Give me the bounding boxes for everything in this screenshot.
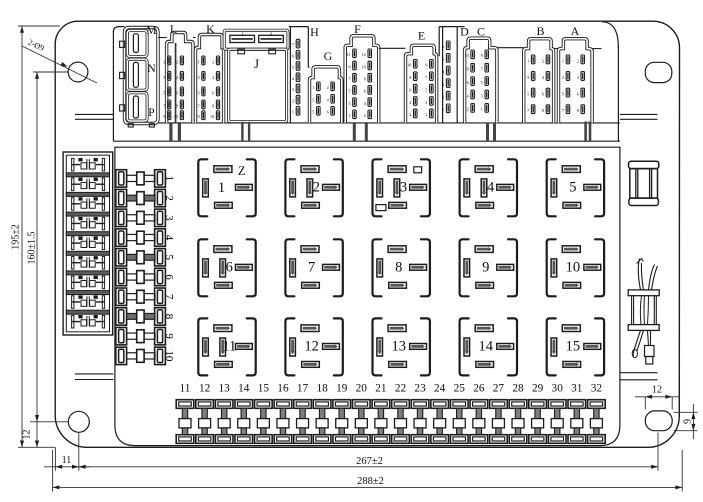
svg-text:267±2: 267±2 <box>356 456 383 467</box>
svg-text:3: 3 <box>163 215 175 221</box>
svg-text:15: 15 <box>566 338 581 354</box>
svg-text:10: 10 <box>407 63 411 68</box>
svg-text:3: 3 <box>312 98 314 103</box>
svg-text:7: 7 <box>198 103 200 108</box>
svg-text:8: 8 <box>409 75 411 80</box>
svg-text:3: 3 <box>442 82 444 87</box>
svg-text:7: 7 <box>308 259 315 275</box>
svg-text:32: 32 <box>591 383 603 395</box>
svg-text:7: 7 <box>481 67 483 72</box>
svg-text:2: 2 <box>364 113 366 118</box>
svg-text:6: 6 <box>442 44 444 49</box>
svg-text:3: 3 <box>481 93 483 98</box>
svg-text:N: N <box>147 63 156 75</box>
svg-text:22: 22 <box>395 383 407 395</box>
svg-text:2: 2 <box>176 59 178 64</box>
svg-text:7: 7 <box>425 75 427 80</box>
svg-text:12: 12 <box>22 430 33 440</box>
svg-text:11: 11 <box>62 455 72 466</box>
svg-text:7: 7 <box>292 42 294 47</box>
svg-text:8: 8 <box>163 314 175 320</box>
svg-text:5: 5 <box>163 90 165 95</box>
svg-text:6: 6 <box>542 92 544 97</box>
svg-text:12: 12 <box>199 383 211 395</box>
svg-text:25: 25 <box>454 383 466 395</box>
svg-text:10: 10 <box>465 53 469 58</box>
svg-text:13: 13 <box>391 338 406 354</box>
svg-text:1: 1 <box>292 110 294 115</box>
svg-text:C: C <box>477 25 485 39</box>
svg-text:1: 1 <box>348 113 350 118</box>
svg-text:6: 6 <box>467 80 469 85</box>
svg-text:1: 1 <box>312 85 314 90</box>
svg-text:2: 2 <box>467 107 469 112</box>
svg-text:6: 6 <box>292 54 294 59</box>
svg-text:6: 6 <box>327 110 329 115</box>
svg-text:5: 5 <box>562 92 564 97</box>
svg-text:5: 5 <box>569 179 576 195</box>
svg-text:288±2: 288±2 <box>357 476 384 487</box>
svg-text:7: 7 <box>163 294 175 300</box>
svg-text:9: 9 <box>481 53 483 58</box>
svg-text:F: F <box>354 22 361 36</box>
svg-text:7: 7 <box>348 77 350 82</box>
svg-text:7: 7 <box>163 103 165 108</box>
svg-text:7: 7 <box>527 108 529 113</box>
svg-text:8: 8 <box>577 108 579 113</box>
svg-text:15: 15 <box>258 383 270 395</box>
svg-text:6: 6 <box>212 90 214 95</box>
svg-text:14: 14 <box>479 338 494 354</box>
svg-text:11: 11 <box>346 52 350 57</box>
svg-text:3: 3 <box>198 75 200 80</box>
svg-text:10: 10 <box>163 350 175 362</box>
svg-text:2: 2 <box>542 58 544 63</box>
svg-text:27: 27 <box>493 383 505 395</box>
svg-text:5: 5 <box>481 80 483 85</box>
svg-text:6: 6 <box>577 92 579 97</box>
svg-text:2: 2 <box>163 195 175 201</box>
svg-text:5: 5 <box>312 110 314 115</box>
svg-text:1: 1 <box>218 180 226 196</box>
svg-text:11: 11 <box>222 338 236 354</box>
svg-text:2: 2 <box>327 85 329 90</box>
svg-text:1: 1 <box>198 59 200 64</box>
svg-text:2: 2 <box>313 179 320 195</box>
svg-text:195±2: 195±2 <box>11 224 22 250</box>
svg-text:B: B <box>536 24 544 38</box>
svg-text:5: 5 <box>198 90 200 95</box>
svg-text:28: 28 <box>512 383 524 395</box>
svg-text:9: 9 <box>683 419 694 424</box>
svg-text:9: 9 <box>425 63 427 68</box>
svg-text:21: 21 <box>375 383 386 395</box>
svg-text:5: 5 <box>348 89 350 94</box>
svg-text:1: 1 <box>442 107 444 112</box>
svg-text:G: G <box>324 49 333 63</box>
svg-text:5: 5 <box>292 65 294 70</box>
svg-text:2: 2 <box>292 98 294 103</box>
svg-text:9: 9 <box>198 114 200 119</box>
svg-text:19: 19 <box>336 383 348 395</box>
svg-text:1: 1 <box>425 112 427 117</box>
svg-text:7: 7 <box>562 108 564 113</box>
svg-text:12: 12 <box>652 384 662 395</box>
svg-text:8: 8 <box>467 67 469 72</box>
svg-text:6: 6 <box>163 274 175 280</box>
svg-text:1: 1 <box>163 59 165 64</box>
svg-text:2: 2 <box>212 59 214 64</box>
svg-text:4: 4 <box>487 179 495 195</box>
svg-text:4: 4 <box>163 235 175 241</box>
svg-text:8: 8 <box>212 103 214 108</box>
svg-text:3: 3 <box>292 87 294 92</box>
svg-text:8: 8 <box>395 259 402 275</box>
svg-text:6: 6 <box>409 87 411 92</box>
svg-text:9: 9 <box>348 64 350 69</box>
svg-text:3: 3 <box>562 75 564 80</box>
svg-text:3: 3 <box>425 100 427 105</box>
svg-text:8: 8 <box>542 108 544 113</box>
svg-text:12: 12 <box>362 52 366 57</box>
svg-text:Z: Z <box>238 164 246 178</box>
svg-text:J: J <box>254 56 259 71</box>
svg-text:H: H <box>310 25 319 39</box>
svg-text:2: 2 <box>409 112 411 117</box>
svg-text:6: 6 <box>176 90 178 95</box>
svg-text:1: 1 <box>527 58 529 63</box>
svg-text:6: 6 <box>226 259 233 275</box>
svg-text:14: 14 <box>238 383 250 395</box>
svg-text:1: 1 <box>163 176 175 182</box>
svg-text:20: 20 <box>356 383 368 395</box>
svg-text:M: M <box>146 25 156 37</box>
svg-text:6: 6 <box>364 89 366 94</box>
svg-text:10: 10 <box>174 114 178 119</box>
svg-text:3: 3 <box>527 75 529 80</box>
svg-text:23: 23 <box>414 383 426 395</box>
svg-text:29: 29 <box>532 383 544 395</box>
svg-text:17: 17 <box>297 383 309 395</box>
svg-text:11: 11 <box>180 383 191 395</box>
svg-text:30: 30 <box>552 383 564 395</box>
svg-text:8: 8 <box>364 77 366 82</box>
svg-text:18: 18 <box>316 383 328 395</box>
svg-text:2: 2 <box>577 58 579 63</box>
svg-text:10: 10 <box>362 64 366 69</box>
svg-text:26: 26 <box>473 383 485 395</box>
svg-text:L: L <box>170 22 177 36</box>
svg-text:A: A <box>571 24 580 38</box>
svg-text:3: 3 <box>348 101 350 106</box>
svg-text:12: 12 <box>304 338 319 354</box>
svg-text:13: 13 <box>219 383 231 395</box>
svg-text:3: 3 <box>400 179 407 195</box>
svg-text:E: E <box>418 29 425 43</box>
svg-text:16: 16 <box>277 383 289 395</box>
svg-text:1: 1 <box>562 58 564 63</box>
svg-text:5: 5 <box>527 92 529 97</box>
svg-text:3: 3 <box>163 75 165 80</box>
svg-text:1: 1 <box>481 107 483 112</box>
svg-text:9: 9 <box>163 333 175 339</box>
svg-text:10: 10 <box>566 259 581 275</box>
svg-text:24: 24 <box>434 383 446 395</box>
svg-text:9: 9 <box>482 259 489 275</box>
svg-text:9: 9 <box>163 114 165 119</box>
svg-text:160±1.5: 160±1.5 <box>27 232 38 265</box>
svg-text:31: 31 <box>571 383 582 395</box>
svg-text:2: 2 <box>442 95 444 100</box>
svg-text:K: K <box>206 22 215 36</box>
svg-text:5: 5 <box>163 255 175 261</box>
svg-text:5: 5 <box>425 87 427 92</box>
svg-text:5: 5 <box>442 57 444 62</box>
svg-text:10: 10 <box>210 114 214 119</box>
svg-text:P: P <box>148 107 154 119</box>
svg-text:8: 8 <box>176 103 178 108</box>
